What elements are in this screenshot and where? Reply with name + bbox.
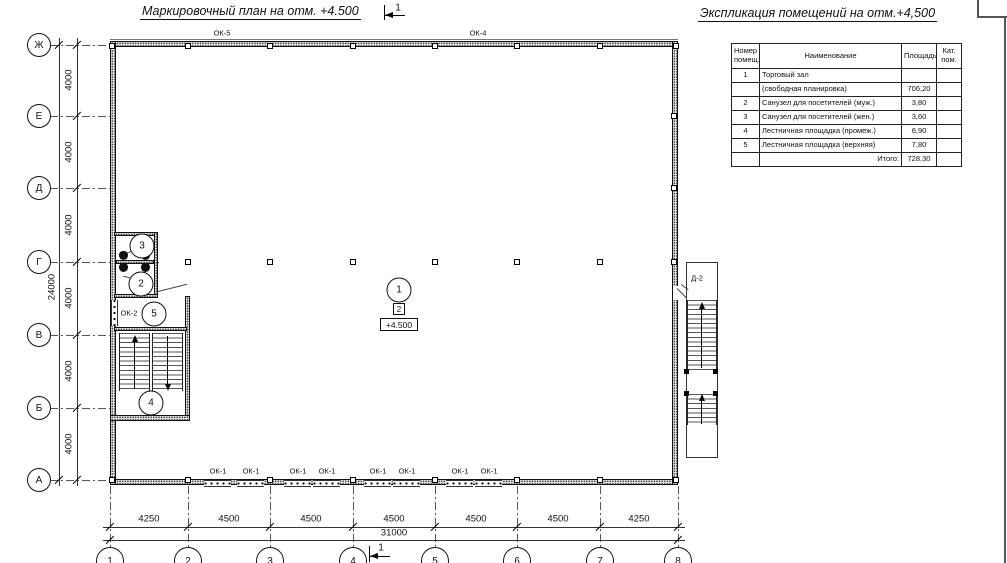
table-cell: 706,20: [902, 83, 937, 97]
table-cell: Санузел для посетителей (муж.): [760, 97, 902, 111]
column-marker: [350, 477, 356, 483]
window-ok1-segment: [284, 480, 311, 487]
table-header: Наименование: [760, 44, 902, 69]
table-cell: 4: [732, 125, 760, 139]
column-marker: [514, 43, 520, 49]
window-ok1-segment: [204, 480, 231, 487]
room-number-bubble: 3: [130, 234, 155, 259]
stair-arrow-line: [134, 341, 135, 389]
grid-bubble-row: Е: [27, 104, 51, 128]
table-row: 5 Лестничная площадка (верхняя) 7,80: [732, 139, 962, 153]
table-header: Номер помещ.: [732, 44, 760, 69]
column-marker: [267, 259, 273, 265]
table-cell: 3: [732, 111, 760, 125]
column-marker: [432, 477, 438, 483]
window-label: ОК-1: [243, 467, 260, 476]
table-row: 2 Санузел для посетителей (муж.) 3,80: [732, 97, 962, 111]
column-marker: [185, 43, 191, 49]
grid-bubble-row: Б: [27, 396, 51, 420]
window-ok1-segment: [364, 480, 391, 487]
column-marker: [109, 43, 115, 49]
table-cell: 728,30: [902, 153, 937, 167]
arrow-up-icon: [132, 335, 138, 342]
table-row: 3 Санузел для посетителей (жен.) 3,60: [732, 111, 962, 125]
dim-total-label: 24000: [47, 274, 58, 300]
window-label: ОК-1: [290, 467, 307, 476]
column-marker: [350, 259, 356, 265]
column-marker: [671, 259, 677, 265]
axis-line: [188, 486, 189, 547]
elevation-marker: +4.500: [380, 318, 418, 331]
toilet-fixture: [119, 251, 128, 260]
stair-arrow-line: [701, 400, 702, 424]
window-label: ОК-1: [370, 467, 387, 476]
column-marker: [671, 113, 677, 119]
table-cell: 7,80: [902, 139, 937, 153]
column-marker: [267, 477, 273, 483]
dim-label: 4000: [64, 287, 75, 308]
table-cell: [937, 125, 962, 139]
partition-wall: [185, 296, 190, 421]
window-label: ОК-1: [452, 467, 469, 476]
window-label: ОК-1: [210, 467, 227, 476]
window-label: ОК-4: [470, 29, 487, 38]
grid-bubble-col: 3: [256, 547, 284, 563]
window-ok2-segment: [111, 300, 118, 326]
wall-top: [110, 41, 678, 47]
table-row: 1 Торговый зал: [732, 69, 962, 83]
window-ok1-segment: [446, 480, 473, 487]
room-number-bubble: 5: [142, 302, 167, 327]
column-marker: [185, 259, 191, 265]
window-ok1-segment: [237, 480, 264, 487]
room-number-bubble: 4: [139, 391, 164, 416]
table-row: (свободная планировка) 706,20: [732, 83, 962, 97]
table-cell: [937, 153, 962, 167]
partition-wall: [110, 415, 190, 421]
stair-post: [684, 391, 689, 396]
dim-label: 4250: [628, 514, 649, 525]
plan-title: Маркировочный план на отм. +4.500: [140, 4, 361, 20]
table-cell: [732, 153, 760, 167]
arrow-up-icon: [699, 394, 705, 401]
grid-bubble-col: 5: [421, 547, 449, 563]
stair-arrow-line: [167, 336, 168, 384]
dim-label: 4000: [64, 214, 75, 235]
table-cell: 3,80: [902, 97, 937, 111]
table-row: 4 Лестничная площадка (промеж.) 6,90: [732, 125, 962, 139]
axis-line: [353, 486, 354, 547]
table-cell: [902, 69, 937, 83]
arrow-down-icon: [165, 384, 171, 391]
grid-bubble-row: А: [27, 468, 51, 492]
grid-bubble-row: Ж: [27, 33, 51, 57]
grid-bubble-row: Г: [27, 250, 51, 274]
drawing-sheet: Маркировочный план на отм. +4.500 Экспли…: [0, 0, 1007, 563]
grid-bubble-col: 8: [664, 547, 692, 563]
window-ok1-segment: [475, 480, 502, 487]
axis-line: [517, 486, 518, 547]
dim-label: 4000: [64, 141, 75, 162]
table-cell: 2: [732, 97, 760, 111]
dim-label: 4000: [64, 69, 75, 90]
detail-marker: 2: [393, 303, 405, 315]
stair-post: [713, 391, 718, 396]
grid-bubble-row: Д: [27, 176, 51, 200]
column-marker: [185, 477, 191, 483]
column-marker: [350, 43, 356, 49]
dimension-line: [103, 540, 685, 541]
sheet-frame-corner: [977, 0, 1007, 18]
column-marker: [109, 477, 115, 483]
grid-bubble-col: 7: [586, 547, 614, 563]
dim-label: 4500: [218, 514, 239, 525]
section-arrow-icon: [385, 12, 393, 18]
grid-bubble-col: 1: [96, 547, 124, 563]
column-marker: [673, 43, 679, 49]
window-label: ОК-5: [214, 29, 231, 38]
table-cell: 1: [732, 69, 760, 83]
table-cell: Торговый зал: [760, 69, 902, 83]
table-cell: [937, 97, 962, 111]
window-ok1-segment: [313, 480, 340, 487]
table-cell: Лестничная площадка (промеж.): [760, 125, 902, 139]
column-marker: [267, 43, 273, 49]
table-cell: 5: [732, 139, 760, 153]
table-cell: [937, 139, 962, 153]
column-marker: [671, 185, 677, 191]
window-label: ОК-2: [121, 309, 138, 318]
dimension-line: [59, 38, 60, 486]
table-cell: Итого:: [760, 153, 902, 167]
column-marker: [514, 477, 520, 483]
grid-bubble-row: В: [27, 323, 51, 347]
window-label: ОК-1: [399, 467, 416, 476]
dim-label: 4250: [138, 514, 159, 525]
window-ok1-segment: [393, 480, 420, 487]
grid-bubble-col: 6: [503, 547, 531, 563]
room-number-bubble: 2: [129, 272, 154, 297]
section-mark-number: 1: [378, 543, 384, 554]
sheet-frame-line: [1004, 18, 1006, 563]
window-label: ОК-1: [481, 467, 498, 476]
table-cell: 3,60: [902, 111, 937, 125]
table-header: Кат. пом.: [937, 44, 962, 69]
dim-total-label: 31000: [381, 528, 407, 539]
dim-label: 4000: [64, 433, 75, 454]
partition-wall: [154, 232, 158, 298]
explication-title: Экспликация помещений на отм.+4,500: [698, 6, 937, 22]
dim-label: 4500: [300, 514, 321, 525]
section-arrow-icon: [370, 553, 378, 559]
column-marker: [432, 259, 438, 265]
column-marker: [514, 259, 520, 265]
column-marker: [597, 259, 603, 265]
window-label: ОК-1: [319, 467, 336, 476]
table-cell: Санузел для посетителей (жен.): [760, 111, 902, 125]
door-leaf: [158, 284, 187, 292]
table-row: Итого: 728,30: [732, 153, 962, 167]
axis-line: [270, 486, 271, 547]
toilet-fixture: [119, 263, 128, 272]
section-mark-number: 1: [395, 3, 401, 14]
column-marker: [673, 477, 679, 483]
table-cell: 6,90: [902, 125, 937, 139]
axis-line: [435, 486, 436, 547]
column-marker: [432, 43, 438, 49]
room-number-bubble: 1: [387, 278, 412, 303]
column-marker: [597, 43, 603, 49]
table-header: Площадь: [902, 44, 937, 69]
dim-label: 4000: [64, 360, 75, 381]
dim-label: 4500: [383, 514, 404, 525]
table-cell: [937, 83, 962, 97]
table-cell: Лестничная площадка (верхняя): [760, 139, 902, 153]
grid-bubble-col: 4: [339, 547, 367, 563]
explication-table: Номер помещ. Наименование Площадь Кат. п…: [731, 43, 962, 167]
stair-post: [713, 369, 718, 374]
arrow-up-icon: [699, 302, 705, 309]
table-cell: [937, 111, 962, 125]
partition-wall: [114, 327, 187, 331]
stair-arrow-line: [701, 308, 702, 368]
table-cell: (свободная планировка): [760, 83, 902, 97]
door-label: Д-2: [691, 274, 703, 283]
column-marker: [597, 477, 603, 483]
dim-label: 4500: [465, 514, 486, 525]
grid-bubble-col: 2: [174, 547, 202, 563]
stair-post: [684, 369, 689, 374]
axis-line: [600, 486, 601, 547]
glazing-line: [110, 39, 678, 40]
table-cell: [732, 83, 760, 97]
dim-label: 4500: [547, 514, 568, 525]
table-cell: [937, 69, 962, 83]
